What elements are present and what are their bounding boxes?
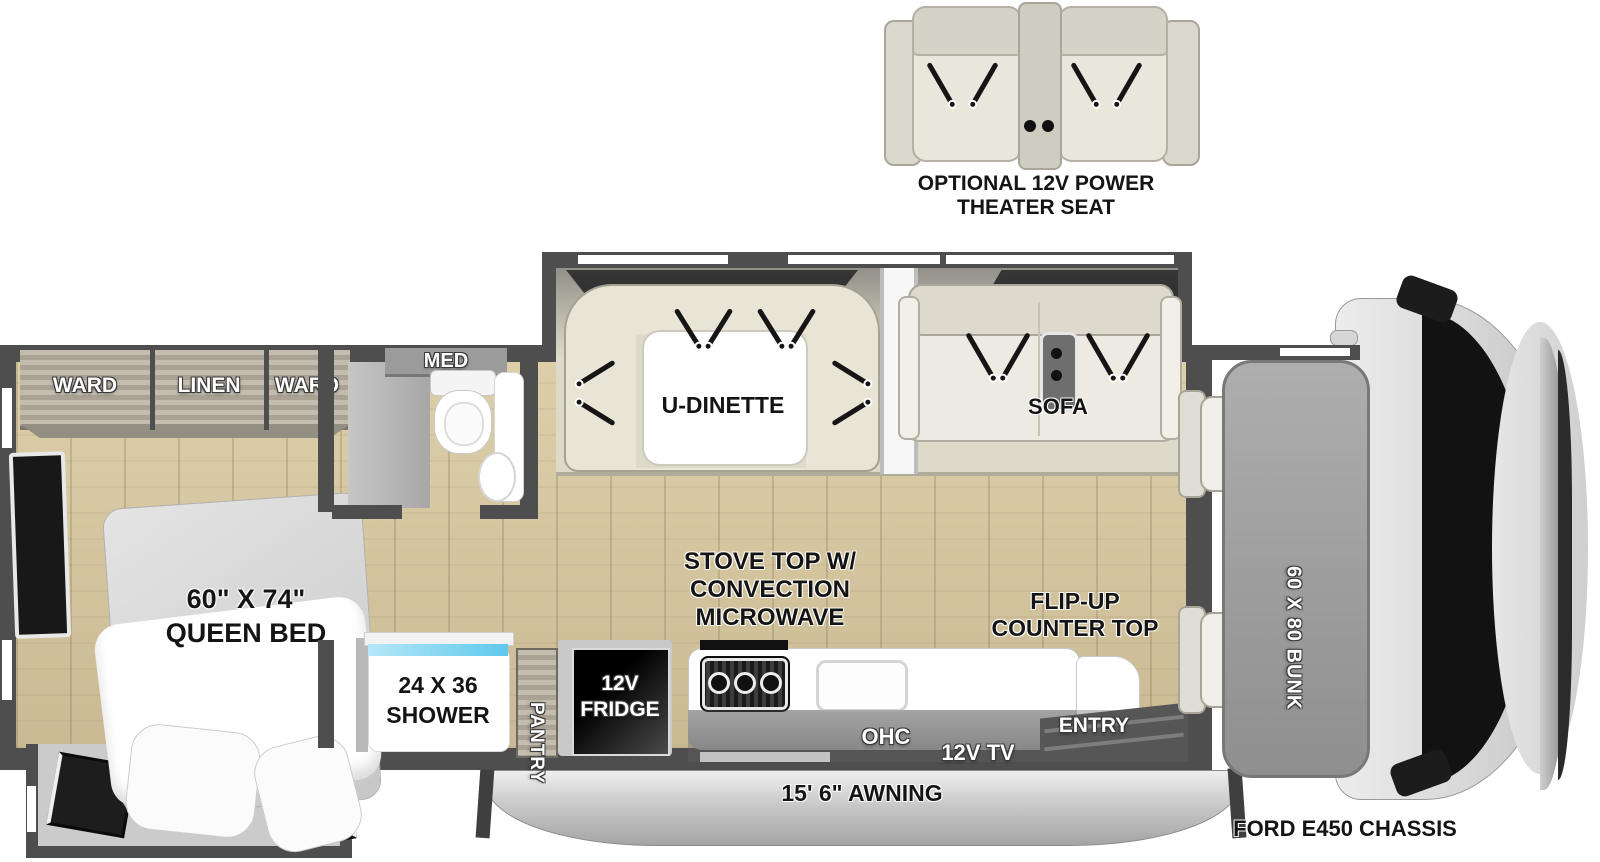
theater-seat-caption-line2: THEATER SEAT <box>886 196 1186 220</box>
theater-seat-caption-line1: OPTIONAL 12V POWER <box>886 172 1186 196</box>
window-strip <box>1280 348 1350 356</box>
window-strip <box>2 388 12 448</box>
window-strip <box>2 640 12 700</box>
stove-label-line1: STOVE TOP W/ <box>650 548 890 576</box>
bathroom-bottom-wall-left <box>332 505 402 519</box>
stove-burner-1 <box>708 672 730 694</box>
flip-up-label-line2: COUNTER TOP <box>985 615 1165 642</box>
window-strip <box>27 786 36 832</box>
shower-glass <box>368 644 508 656</box>
linen-label: LINEN <box>149 374 269 398</box>
shower-pan <box>368 648 510 752</box>
slideout-floor-seam <box>556 472 1178 476</box>
awning-end-left <box>476 768 495 839</box>
bedroom-partition-upper <box>318 345 334 512</box>
stove-burner-3 <box>760 672 782 694</box>
chassis-label: FORD E450 CHASSIS <box>1190 816 1500 842</box>
bathroom-sink <box>478 452 516 502</box>
theater-backrest-left <box>912 6 1022 56</box>
stove-label-line3: MICROWAVE <box>650 604 890 632</box>
flip-up-label-line1: FLIP-UP <box>985 588 1165 615</box>
queen-bed-label-line2: QUEEN BED <box>116 618 376 649</box>
bedroom-partition-lower <box>318 640 334 748</box>
entry-label: ENTRY <box>1034 714 1154 738</box>
cab-door-handle-1 <box>1330 330 1358 346</box>
sofa-armrest-left <box>898 296 920 440</box>
sofa-cupholder-1 <box>1051 348 1062 359</box>
bedroom-tv <box>9 451 71 639</box>
fridge-label-line2: FRIDGE <box>572 698 668 722</box>
awning-label: 15' 6" AWNING <box>562 780 1162 807</box>
sofa-cupholder-2 <box>1051 370 1062 381</box>
queen-bed-label-line1: 60" X 74" <box>116 584 376 615</box>
fridge-label-line1: 12V <box>572 672 668 696</box>
dinette-label: U-DINETTE <box>623 392 823 419</box>
shower-label-line2: SHOWER <box>358 702 518 729</box>
sofa-backrest <box>908 284 1174 336</box>
theater-cupholder-2 <box>1042 120 1054 132</box>
toilet-seat <box>444 402 484 446</box>
bedroom-cabinet-front-edge <box>20 424 350 438</box>
bed-pillow-left <box>123 721 263 840</box>
stove-vent-strip <box>700 640 788 650</box>
stove-burner-2 <box>734 672 756 694</box>
theater-console <box>1018 2 1062 170</box>
bathroom-bottom-wall-right <box>480 505 538 519</box>
stove-label-line2: CONVECTION <box>650 576 890 604</box>
sofa-label: SOFA <box>998 394 1118 420</box>
ward-left-label: WARD <box>25 374 145 398</box>
window-strip <box>578 255 728 264</box>
shower-label-line1: 24 X 36 <box>358 672 518 699</box>
bathroom-wall-block <box>348 362 430 508</box>
tv-label: 12V TV <box>918 740 1038 766</box>
kitchen-sink <box>816 660 908 712</box>
window-strip <box>788 255 940 264</box>
theater-cupholder-1 <box>1024 120 1036 132</box>
theater-backrest-right <box>1058 6 1168 56</box>
window-strip <box>946 255 1174 264</box>
ward-right-label: WARD <box>252 374 362 398</box>
rv-floorplan-diagram: OPTIONAL 12V POWER THEATER SEAT 15' 6" A… <box>0 0 1600 862</box>
